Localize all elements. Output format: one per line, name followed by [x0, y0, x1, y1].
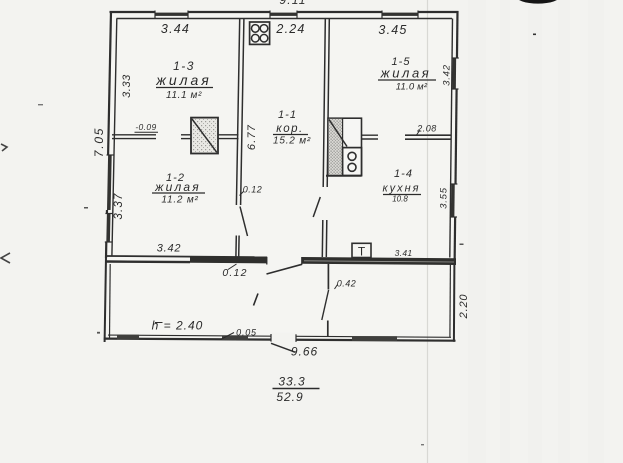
- svg-text:T: T: [358, 245, 366, 259]
- svg-text:7.05: 7.05: [92, 127, 106, 158]
- svg-text:0.42: 0.42: [337, 279, 357, 289]
- svg-text:жилая: жилая: [154, 180, 201, 194]
- svg-text:1-4: 1-4: [394, 168, 413, 180]
- svg-text:3.41: 3.41: [395, 248, 413, 258]
- svg-text:3.42: 3.42: [442, 64, 453, 86]
- svg-text:1-3: 1-3: [173, 59, 195, 73]
- svg-text:3.45: 3.45: [378, 23, 407, 37]
- svg-text:жилая: жилая: [155, 72, 212, 88]
- svg-text:-0.09: -0.09: [135, 122, 156, 132]
- svg-text:кор.: кор.: [276, 123, 303, 135]
- svg-text:0.05: 0.05: [236, 328, 257, 338]
- svg-text:0.12: 0.12: [243, 185, 263, 195]
- svg-text:2.24: 2.24: [275, 22, 305, 36]
- svg-text:10.8: 10.8: [392, 195, 408, 204]
- svg-text:h = 2.40: h = 2.40: [152, 319, 204, 333]
- svg-text:6.77: 6.77: [246, 124, 258, 150]
- svg-text:52.9: 52.9: [276, 390, 303, 404]
- svg-text:9.11: 9.11: [279, 0, 306, 7]
- svg-text:11.2 м²: 11.2 м²: [161, 195, 198, 206]
- svg-text:3.55: 3.55: [439, 187, 450, 209]
- svg-text:жилая: жилая: [380, 66, 432, 81]
- svg-text:11.1 м²: 11.1 м²: [166, 90, 202, 101]
- svg-text:кухня: кухня: [382, 183, 420, 195]
- svg-text:11.0 м²: 11.0 м²: [396, 82, 428, 93]
- svg-text:3.44: 3.44: [161, 22, 190, 36]
- svg-text:9.66: 9.66: [291, 345, 318, 359]
- svg-text:1-1: 1-1: [278, 109, 297, 121]
- svg-text:0.12: 0.12: [222, 267, 247, 279]
- svg-text:15.2 м²: 15.2 м²: [273, 136, 311, 147]
- svg-text:3.33: 3.33: [121, 74, 133, 98]
- svg-text:33.3: 33.3: [278, 375, 305, 389]
- svg-text:2.20: 2.20: [458, 294, 470, 320]
- svg-text:2.08: 2.08: [416, 124, 437, 134]
- svg-text:3.37: 3.37: [113, 192, 125, 219]
- svg-text:3.42: 3.42: [157, 243, 182, 255]
